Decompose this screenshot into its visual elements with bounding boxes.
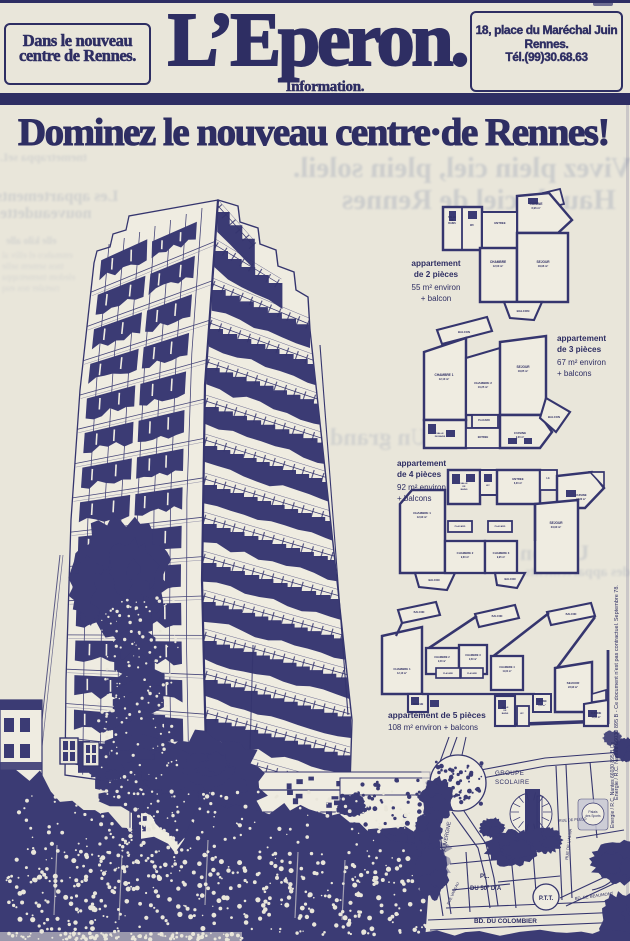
- svg-text:12,80 m²: 12,80 m²: [576, 497, 586, 501]
- svg-text:CHAMBRE 2: CHAMBRE 2: [434, 655, 450, 659]
- svg-text:appartement: appartement: [397, 459, 446, 468]
- svg-text:WC: WC: [486, 485, 490, 487]
- svg-text:+ balcons: + balcons: [557, 369, 591, 378]
- svg-text:DU 50º D’A: DU 50º D’A: [470, 886, 502, 892]
- svg-text:12,10 m²: 12,10 m²: [439, 377, 450, 381]
- svg-text:BALCON: BALCON: [414, 611, 425, 614]
- svg-text:+ balcons: + balcons: [397, 494, 431, 503]
- svg-text:9,60 m²: 9,60 m²: [461, 555, 469, 559]
- svg-text:SALLE: SALLE: [502, 706, 509, 709]
- svg-text:18,96 m²: 18,96 m²: [538, 264, 549, 268]
- svg-text:P.T.T.: P.T.T.: [539, 896, 554, 902]
- svg-text:BALCON: BALCON: [548, 415, 560, 419]
- svg-text:PLACARD: PLACARD: [478, 419, 490, 422]
- svg-text:ENTREE: ENTREE: [512, 477, 523, 481]
- svg-text:55 m² environ: 55 m² environ: [412, 283, 461, 292]
- svg-text:de 4 pièces: de 4 pièces: [397, 470, 442, 479]
- svg-text:CHAMBRE 3: CHAMBRE 3: [465, 653, 481, 657]
- svg-text:ENTREE: ENTREE: [537, 701, 547, 703]
- svg-text:CHAMBRE 2: CHAMBRE 2: [457, 551, 474, 555]
- svg-text:9,95 m²: 9,95 m²: [497, 555, 505, 559]
- svg-text:6,96 m²: 6,96 m²: [532, 206, 541, 210]
- svg-text:GROUPE: GROUPE: [495, 770, 524, 777]
- svg-text:BALCON: BALCON: [504, 577, 515, 581]
- svg-text:DE BAINS: DE BAINS: [435, 435, 446, 438]
- svg-text:CUISINE: CUISINE: [575, 493, 586, 497]
- svg-text:SALLE: SALLE: [460, 482, 468, 485]
- svg-text:appartement: appartement: [557, 334, 606, 343]
- svg-text:appartement de 5 pièces: appartement de 5 pièces: [388, 710, 486, 720]
- svg-text:SEJOUR: SEJOUR: [549, 521, 563, 525]
- svg-text:BAINS: BAINS: [448, 222, 456, 225]
- svg-text:CUISINE: CUISINE: [514, 431, 526, 435]
- svg-text:12,90 m²: 12,90 m²: [417, 515, 428, 519]
- svg-text:18,85 m²: 18,85 m²: [518, 369, 529, 373]
- svg-text:CHAMBRE 4: CHAMBRE 4: [499, 665, 515, 669]
- svg-text:SEJOUR: SEJOUR: [516, 365, 530, 369]
- svg-text:PLACARD: PLACARD: [443, 672, 453, 675]
- svg-text:WC: WC: [520, 713, 524, 715]
- svg-text:108 m² environ + balcons: 108 m² environ + balcons: [388, 723, 478, 732]
- svg-text:appartement: appartement: [411, 259, 460, 268]
- svg-text:SEJOUR: SEJOUR: [567, 681, 580, 685]
- svg-text:ENTREE: ENTREE: [478, 435, 489, 439]
- svg-text:23,90 m²: 23,90 m²: [568, 685, 578, 689]
- svg-text:des Sports: des Sports: [585, 814, 601, 818]
- svg-text:PLACARD: PLACARD: [455, 525, 466, 528]
- svg-text:CUISINE: CUISINE: [530, 202, 543, 206]
- svg-text:SCOLAIRE: SCOLAIRE: [495, 779, 530, 786]
- svg-text:LG: LG: [546, 477, 549, 480]
- svg-text:CHAMBRE 1: CHAMBRE 1: [393, 667, 411, 671]
- svg-text:12,10 m²: 12,10 m²: [397, 671, 407, 675]
- svg-text:DOUCHE: DOUCHE: [413, 703, 424, 706]
- svg-text:de 3 pièces: de 3 pièces: [557, 345, 602, 354]
- svg-text:BD. DU COLOMBIER: BD. DU COLOMBIER: [474, 918, 537, 925]
- svg-text:CHAMBRE 1: CHAMBRE 1: [413, 511, 431, 515]
- svg-text:BAINS: BAINS: [502, 712, 509, 715]
- svg-text:BALCON: BALCON: [517, 309, 530, 313]
- svg-text:CHAMBRE: CHAMBRE: [490, 260, 506, 264]
- svg-text:12,00 m²: 12,00 m²: [493, 264, 504, 268]
- svg-text:BALCON: BALCON: [492, 615, 503, 618]
- svg-text:CHAMBRE 2: CHAMBRE 2: [474, 381, 492, 385]
- svg-text:CHAMBRE 3: CHAMBRE 3: [493, 551, 510, 555]
- svg-text:PLACARD: PLACARD: [467, 672, 477, 675]
- svg-text:92 m² environ: 92 m² environ: [397, 483, 446, 492]
- svg-text:WC: WC: [470, 224, 474, 227]
- svg-text:PL.: PL.: [480, 874, 490, 880]
- svg-text:BALCON: BALCON: [566, 613, 577, 616]
- svg-text:10,25 m²: 10,25 m²: [478, 385, 489, 389]
- svg-text:23,90 m²: 23,90 m²: [551, 525, 562, 529]
- svg-text:+ balcon: + balcon: [421, 294, 451, 303]
- svg-text:PLACARD: PLACARD: [495, 525, 506, 528]
- svg-text:CHAMBRE 1: CHAMBRE 1: [435, 373, 454, 377]
- svg-text:SEJOUR: SEJOUR: [536, 260, 550, 264]
- svg-text:6,50 m²: 6,50 m²: [538, 704, 545, 707]
- svg-text:BALCON: BALCON: [428, 578, 439, 582]
- svg-text:6,00 m²: 6,00 m²: [514, 481, 522, 485]
- svg-text:CUISINE: CUISINE: [591, 711, 602, 715]
- svg-text:DE: DE: [462, 486, 466, 488]
- svg-text:9,00 m²: 9,00 m²: [516, 435, 524, 439]
- svg-text:BAINS: BAINS: [461, 488, 468, 491]
- svg-text:BALCON: BALCON: [458, 330, 470, 334]
- svg-text:ENTREE: ENTREE: [494, 221, 505, 225]
- svg-text:Energie / R.C. Nantes 66030 89: Energie / R.C. Nantes 66030 895 B - Ce d…: [614, 585, 620, 800]
- svg-text:de 2 pièces: de 2 pièces: [414, 270, 459, 279]
- svg-text:67 m² environ: 67 m² environ: [557, 358, 606, 367]
- svg-text:SALLE: SALLE: [436, 432, 444, 435]
